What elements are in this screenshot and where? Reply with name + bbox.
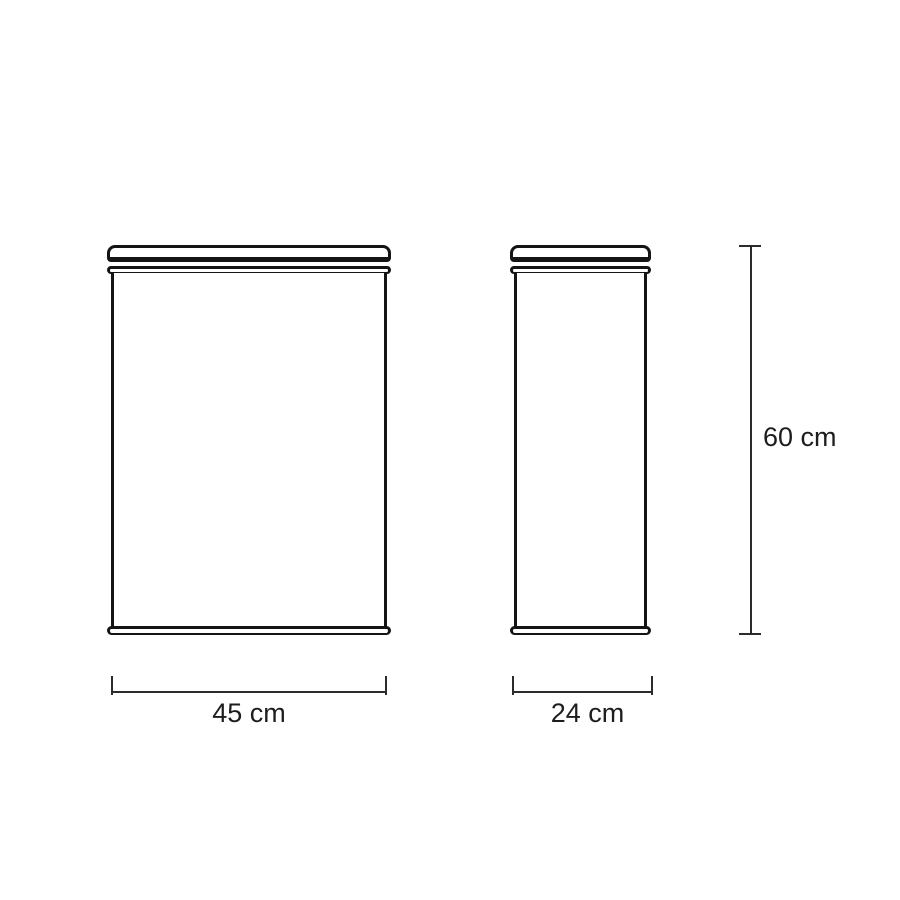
side-view-body	[514, 273, 647, 628]
dimension-line-horizontal	[512, 691, 653, 693]
dimension-drawing: 45 cm 24 cm 60 cm	[0, 0, 900, 900]
front-view-base	[107, 626, 391, 635]
front-view-lid	[107, 245, 391, 262]
dimension-line-vertical	[750, 245, 752, 635]
height-label: 60 cm	[763, 423, 837, 451]
front-view-body	[111, 273, 387, 628]
front-width-label: 45 cm	[111, 699, 387, 727]
side-depth-label: 24 cm	[517, 699, 658, 727]
side-view-base	[510, 626, 651, 635]
dimension-line-horizontal	[111, 691, 387, 693]
side-view-lid	[510, 245, 651, 262]
